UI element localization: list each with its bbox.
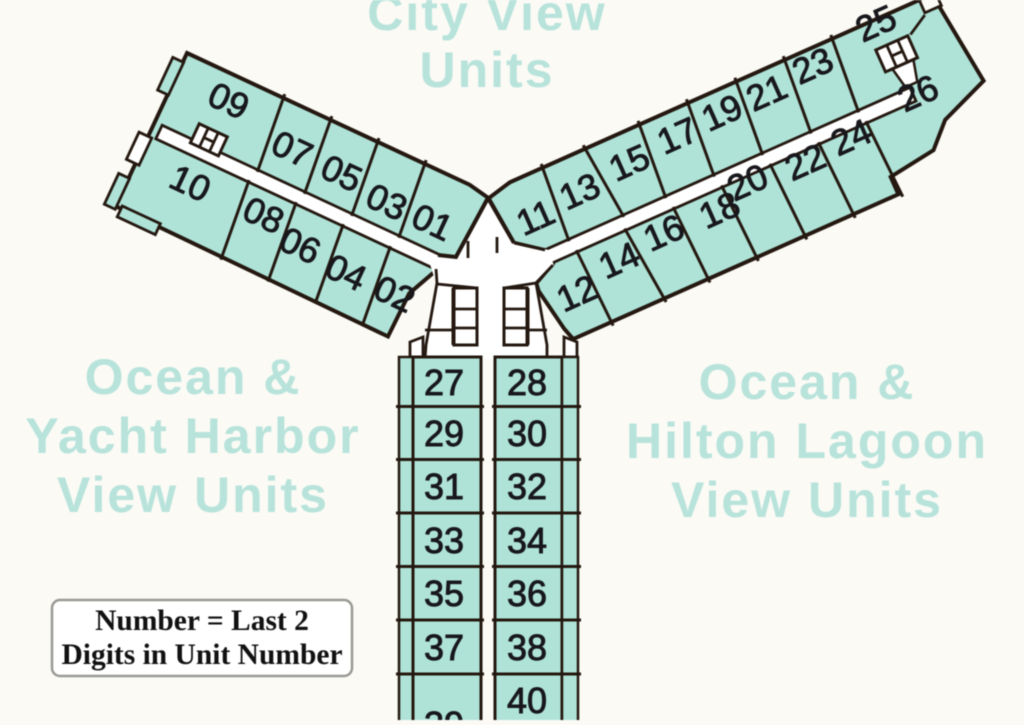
svg-text:39: 39 (424, 704, 464, 720)
svg-text:31: 31 (424, 466, 464, 507)
svg-text:28: 28 (507, 362, 547, 403)
svg-text:35: 35 (424, 573, 464, 614)
svg-text:Ocean &: Ocean & (85, 349, 302, 405)
svg-text:Digits in Unit Number: Digits in Unit Number (61, 639, 342, 671)
svg-text:32: 32 (507, 466, 547, 507)
svg-text:View Units: View Units (671, 472, 943, 528)
svg-text:30: 30 (507, 413, 547, 454)
svg-text:Yacht Harbor: Yacht Harbor (25, 408, 360, 464)
svg-text:City View: City View (367, 0, 606, 41)
svg-text:37: 37 (424, 627, 464, 668)
svg-text:29: 29 (424, 413, 464, 454)
svg-text:View Units: View Units (57, 467, 329, 523)
svg-text:34: 34 (507, 520, 547, 561)
svg-text:38: 38 (507, 627, 547, 668)
svg-text:33: 33 (424, 520, 464, 561)
svg-text:40: 40 (507, 680, 547, 720)
svg-text:Ocean &: Ocean & (699, 354, 916, 410)
svg-text:27: 27 (424, 362, 464, 403)
svg-text:Number = Last 2: Number = Last 2 (95, 605, 309, 637)
svg-text:Hilton Lagoon: Hilton Lagoon (626, 413, 988, 469)
svg-text:36: 36 (507, 573, 547, 614)
svg-text:Units: Units (420, 42, 555, 98)
